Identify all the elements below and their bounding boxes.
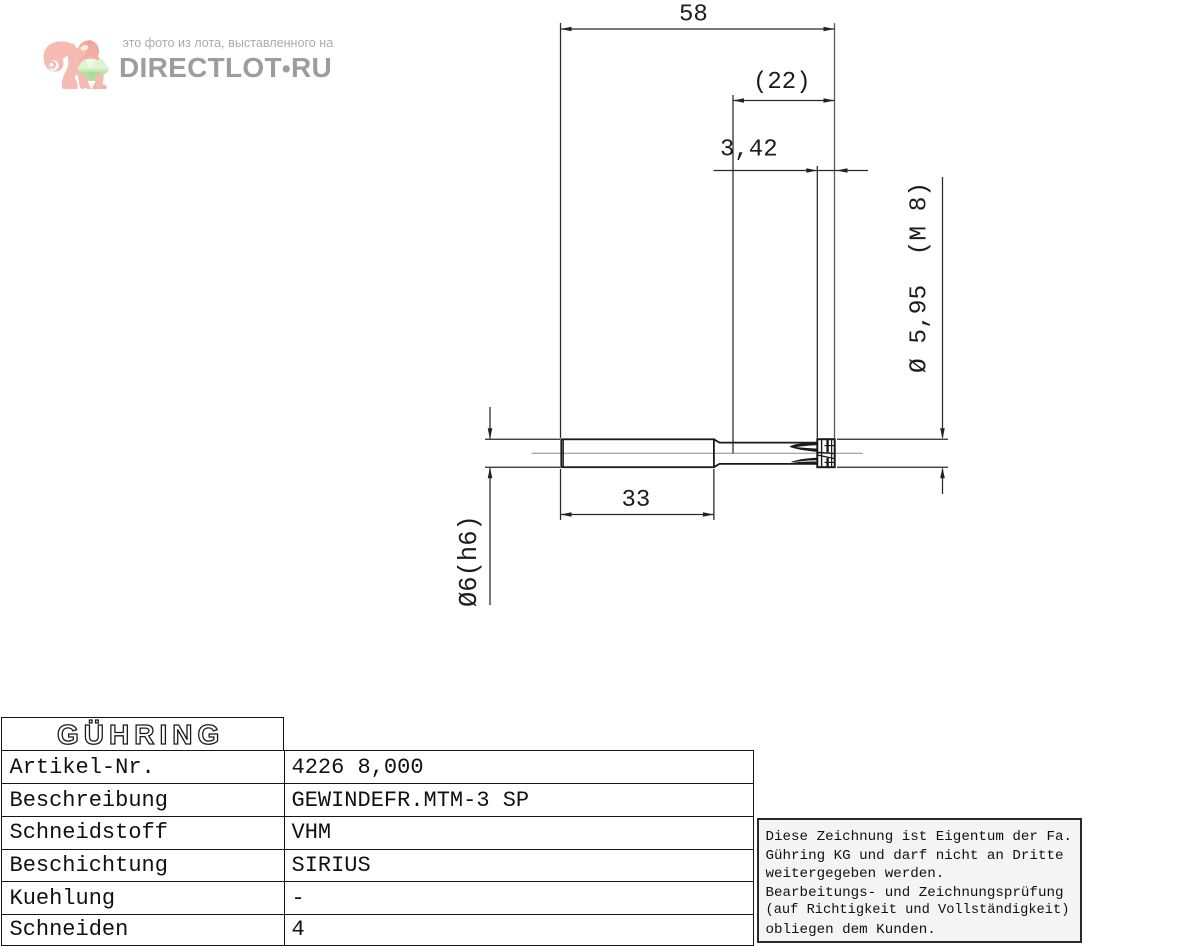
svg-text:58: 58	[679, 2, 708, 29]
svg-text:(22): (22)	[753, 69, 811, 96]
svg-text:Ø6(h6): Ø6(h6)	[455, 515, 484, 607]
svg-text:Ø 5,95 (M 8): Ø 5,95 (M 8)	[907, 182, 934, 373]
svg-text:33: 33	[622, 487, 651, 514]
svg-text:3,42: 3,42	[720, 137, 778, 164]
